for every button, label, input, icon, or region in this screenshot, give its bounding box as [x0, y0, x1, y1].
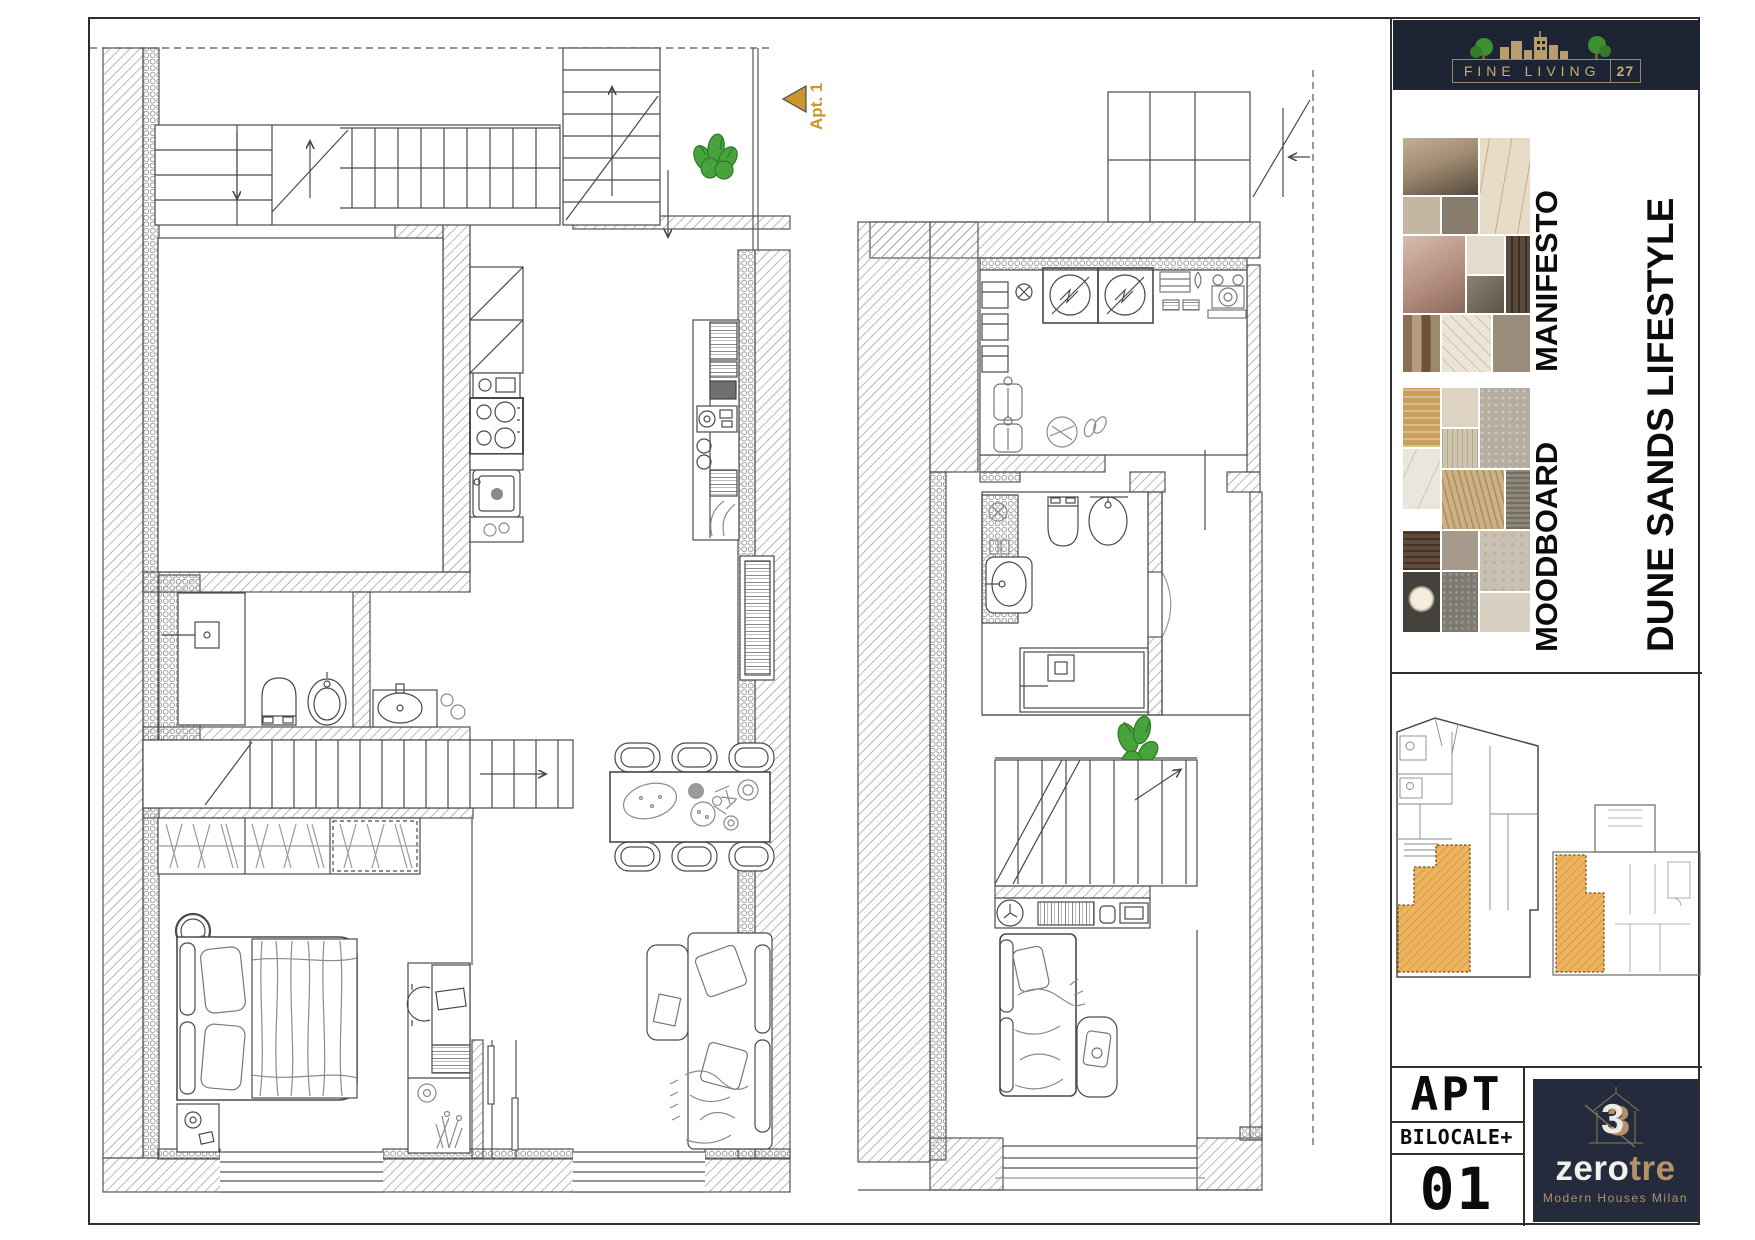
swatch-pearl: [1403, 572, 1440, 631]
swatch-weave: [1506, 470, 1530, 529]
collage-photo-wood-slats: [1506, 236, 1530, 313]
titleblock-apt-label: APT: [1390, 1066, 1523, 1121]
swatch-plaster: [1480, 593, 1530, 632]
swatch-oak: [1403, 388, 1440, 447]
key-plan-building-2: [1553, 805, 1700, 975]
brand-label: FINE LIVING 27: [1452, 59, 1641, 83]
collage-photo-table: [1493, 315, 1530, 372]
key-plan-highlight-unit: [1556, 855, 1604, 972]
key-plan-building-1: [1397, 718, 1538, 977]
zerotre-tre: tre: [1629, 1149, 1675, 1188]
collage-photo-chair: [1403, 197, 1440, 234]
collage-photo-sofa: [1403, 138, 1478, 195]
collage-photo-couple: [1403, 236, 1465, 313]
manifesto-label: MANIFESTO: [1529, 140, 1565, 372]
swatch-white-marble: [1403, 449, 1440, 508]
collage-photo-bedroom: [1467, 276, 1504, 313]
swatch-walnut: [1403, 531, 1440, 570]
brand-number: 27: [1610, 60, 1641, 82]
zerotre-tagline: Modern Houses Milan: [1543, 1191, 1688, 1205]
swatch-gold-grass: [1442, 470, 1505, 529]
titleblock-type-label: BILOCALE+: [1390, 1121, 1523, 1153]
moodboard-label: MOODBOARD: [1529, 388, 1565, 652]
zerotre-wordmark: zerotre: [1555, 1151, 1675, 1186]
moodboard-manifesto-collage: [1403, 138, 1530, 372]
collage-photo-shelf: [1442, 197, 1479, 234]
titleblock-vertical-divider: [1523, 1066, 1525, 1226]
swatch-grey-texture: [1480, 388, 1530, 468]
swatch-stone: [1480, 531, 1530, 590]
titleblock-number: 01: [1390, 1153, 1523, 1225]
zerotre-logo: 3 3 zerotre Modern Houses Milan: [1533, 1079, 1698, 1222]
zerotre-house-icon: 3 3: [1577, 1085, 1655, 1149]
key-plan-highlight-unit: [1398, 845, 1470, 972]
collage-material-swatches: [1403, 315, 1440, 372]
swatch-speckle: [1442, 572, 1479, 631]
svg-text:3: 3: [1601, 1095, 1624, 1142]
brand-name: FINE LIVING: [1453, 60, 1610, 82]
swatch-floral: [1442, 388, 1479, 427]
swatch-crosshatch: [1442, 429, 1479, 468]
key-plan: [1390, 674, 1702, 1064]
collage-photo-marble: [1480, 138, 1530, 234]
zerotre-zero: zero: [1555, 1149, 1629, 1188]
collage-photo-lineart: [1467, 236, 1504, 273]
lifestyle-label: DUNE SANDS LIFESTYLE: [1640, 150, 1692, 652]
brand-logo-fine-living: FINE LIVING 27: [1393, 20, 1700, 90]
swatch-taupe: [1442, 531, 1479, 570]
collage-photo-botanical: [1442, 315, 1492, 372]
moodboard-materials-collage: [1403, 388, 1530, 652]
drawing-sheet: Apt. 1: [0, 0, 1755, 1240]
